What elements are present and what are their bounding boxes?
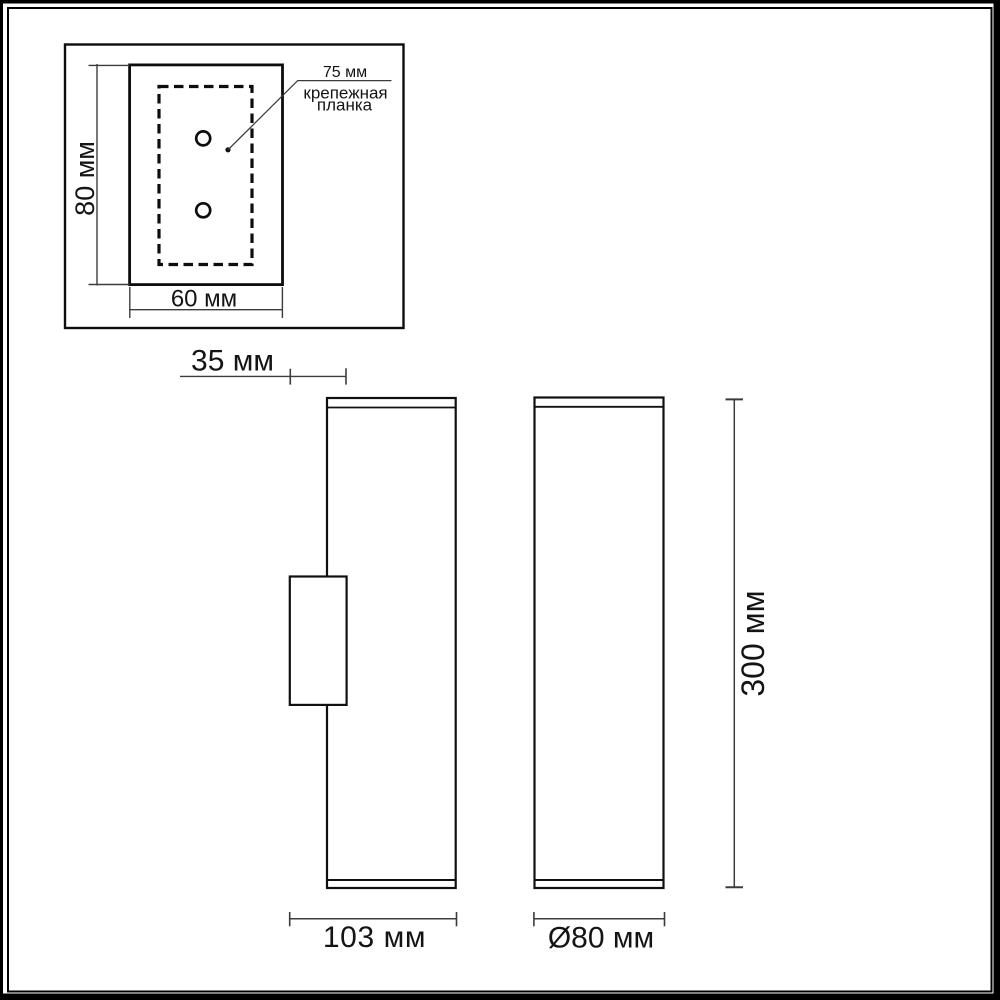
- svg-text:103 мм: 103 мм: [323, 921, 426, 954]
- svg-text:35 мм: 35 мм: [191, 345, 274, 378]
- svg-text:300 мм: 300 мм: [735, 590, 771, 696]
- svg-text:75 мм: 75 мм: [323, 64, 367, 81]
- svg-text:планка: планка: [317, 95, 373, 114]
- svg-text:Ø80 мм: Ø80 мм: [548, 922, 654, 955]
- svg-text:80 мм: 80 мм: [70, 141, 100, 216]
- svg-text:60 мм: 60 мм: [171, 285, 237, 312]
